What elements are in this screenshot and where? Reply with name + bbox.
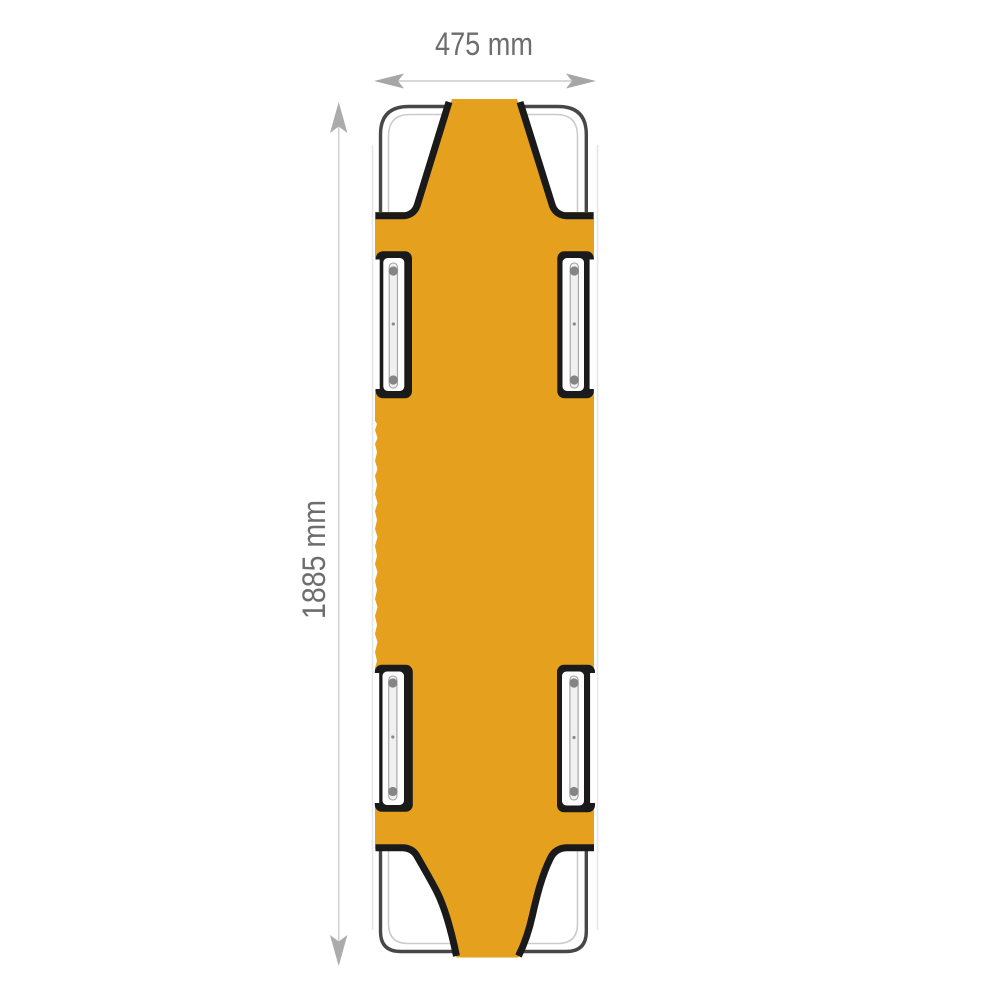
svg-text:1885 mm: 1885 mm	[296, 500, 332, 619]
svg-text:475 mm: 475 mm	[435, 26, 533, 62]
